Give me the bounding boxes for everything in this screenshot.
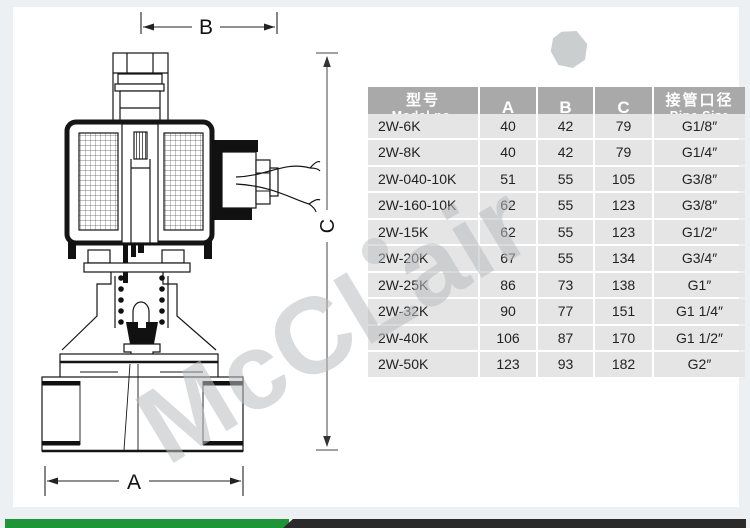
- cell-model: 2W-50K: [368, 352, 478, 377]
- cell-model: 2W-40K: [368, 326, 478, 351]
- dim-label-b: B: [199, 16, 213, 39]
- dim-label-c: C: [317, 219, 339, 233]
- cell-pipe-size: G1/4″: [654, 140, 745, 165]
- cell-pipe-size: G1/2″: [654, 220, 745, 245]
- cell-pipe-size: G1 1/4″: [654, 299, 745, 324]
- col-header-model-cn: 型号: [406, 92, 440, 109]
- cell-c: 134: [595, 246, 652, 271]
- dimension-c: [315, 53, 338, 450]
- coil-winding-left: [79, 133, 118, 230]
- cell-pipe-size: G3/4″: [654, 246, 745, 271]
- cell-model: 2W-25K: [368, 273, 478, 298]
- cell-c: 79: [595, 140, 652, 165]
- cell-b: 42: [538, 140, 593, 165]
- cell-model: 2W-8K: [368, 140, 478, 165]
- cell-c: 123: [595, 193, 652, 218]
- cell-c: 105: [595, 167, 652, 192]
- cell-a: 40: [480, 114, 536, 139]
- cell-c: 182: [595, 352, 652, 377]
- cell-pipe-size: G2″: [654, 352, 745, 377]
- cell-c: 123: [595, 220, 652, 245]
- cell-pipe-size: G3/8″: [654, 193, 745, 218]
- dim-label-a: A: [127, 471, 141, 494]
- cell-a: 86: [480, 273, 536, 298]
- cell-b: 55: [538, 220, 593, 245]
- cell-a: 51: [480, 167, 536, 192]
- cell-c: 170: [595, 326, 652, 351]
- cell-a: 62: [480, 193, 536, 218]
- cell-pipe-size: G1 1/2″: [654, 326, 745, 351]
- valve-cross-section-diagram: B C A: [0, 0, 360, 510]
- dimension-a: [45, 466, 243, 496]
- coil-winding-right: [164, 133, 203, 230]
- cell-model: 2W-040-10K: [368, 167, 478, 192]
- cable-gland: [212, 140, 278, 220]
- spec-table: 型号 Model no. A B C 接管口径 Pipe Size 2W-6K4…: [368, 87, 737, 377]
- banner-dark-stripe: [283, 519, 746, 528]
- valve-body: [42, 362, 243, 451]
- cell-b: 55: [538, 246, 593, 271]
- cell-model: 2W-160-10K: [368, 193, 478, 218]
- cell-pipe-size: G1/8″: [654, 114, 745, 139]
- cell-a: 67: [480, 246, 536, 271]
- cell-c: 151: [595, 299, 652, 324]
- cell-b: 93: [538, 352, 593, 377]
- coil-housing: [67, 122, 212, 243]
- cell-a: 106: [480, 326, 536, 351]
- cell-a: 62: [480, 220, 536, 245]
- valve-outline: [42, 53, 320, 451]
- cell-a: 40: [480, 140, 536, 165]
- banner-green-stripe: [5, 519, 289, 528]
- cell-model: 2W-32K: [368, 299, 478, 324]
- cell-b: 42: [538, 114, 593, 139]
- cell-b: 55: [538, 193, 593, 218]
- cell-a: 123: [480, 352, 536, 377]
- flange: [60, 354, 218, 362]
- valve-seal: [124, 322, 160, 358]
- cell-b: 55: [538, 167, 593, 192]
- cell-model: 2W-20K: [368, 246, 478, 271]
- cell-pipe-size: G3/8″: [654, 167, 745, 192]
- connector-stack: [113, 53, 168, 123]
- cell-b: 73: [538, 273, 593, 298]
- cell-b: 77: [538, 299, 593, 324]
- plunger: [134, 132, 147, 159]
- spec-sheet-page: { "colors": { "page_band": "#edf0f2", "c…: [0, 0, 750, 528]
- cell-a: 90: [480, 299, 536, 324]
- cell-b: 87: [538, 326, 593, 351]
- cell-pipe-size: G1″: [654, 273, 745, 298]
- col-header-pipe-cn: 接管口径: [665, 92, 733, 109]
- cell-model: 2W-15K: [368, 220, 478, 245]
- cell-model: 2W-6K: [368, 114, 478, 139]
- plunger-guide: [133, 302, 149, 324]
- cell-c: 79: [595, 114, 652, 139]
- cell-c: 138: [595, 273, 652, 298]
